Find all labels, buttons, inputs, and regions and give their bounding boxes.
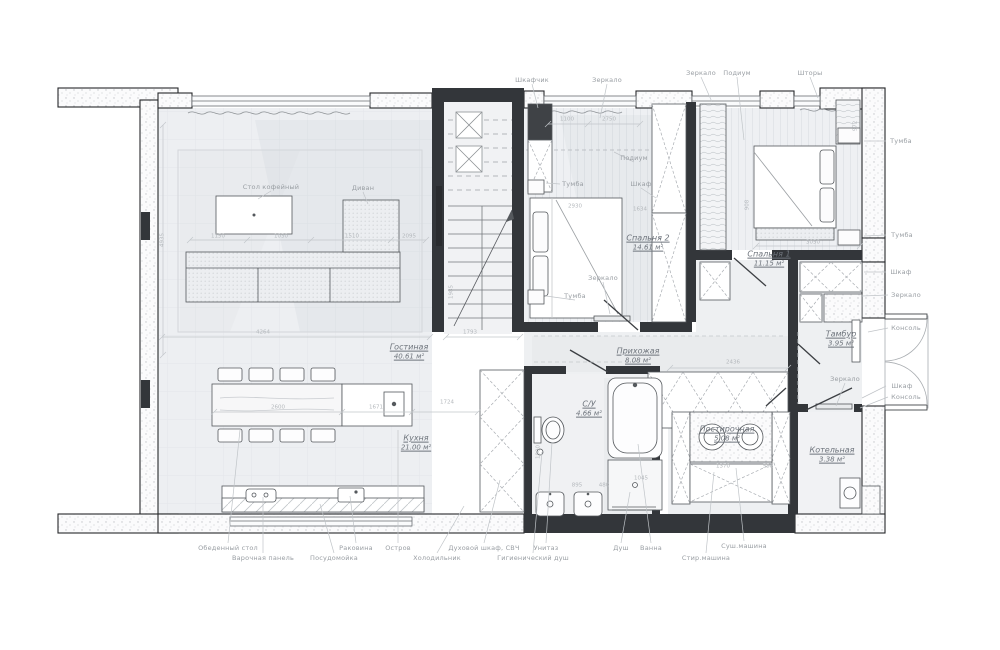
pillow <box>820 188 834 222</box>
dimension-label: 972 <box>853 121 859 132</box>
room-name: Прихожая <box>617 347 660 357</box>
callout-podium: Подиум <box>620 155 648 162</box>
room-label-vestibule: Тамбур 3.95 м² <box>826 330 857 349</box>
dimension-label: 3050 <box>806 240 820 246</box>
callout-dishwasher: Посудомойка <box>310 555 358 562</box>
dimension-label: 2436 <box>726 360 740 366</box>
dimension-label: 2095 <box>402 234 416 240</box>
dimension-label: 908 <box>745 200 751 211</box>
dimension-label: 1900 <box>536 445 542 459</box>
callout-cooktop: Варочная панель <box>232 555 294 562</box>
dimension-label: 1510 <box>345 234 359 240</box>
callout-wardrobe: Шкаф <box>891 383 912 390</box>
room-area: 5.08 м² <box>700 435 755 444</box>
cooktop <box>246 489 276 502</box>
dimension-label: 2600 <box>271 405 285 411</box>
callout-toilet: Унитаз <box>534 545 559 552</box>
tall-cabinets <box>480 370 524 512</box>
room-name: Котельная <box>810 446 855 456</box>
room-area: 40.61 м² <box>390 353 429 362</box>
room-label-boiler: Котельная 3.38 м² <box>810 446 855 465</box>
entry-door-leaf <box>885 405 927 410</box>
callout-coffee-table: Стол кофейный <box>243 184 299 191</box>
dimension-label: 1634 <box>633 207 647 213</box>
callout-wardrobe: Шкаф <box>890 269 911 276</box>
room-label-kitchen: Кухня 21.00 м² <box>401 434 431 453</box>
dimension-label: 2930 <box>568 204 582 210</box>
callout-console: Консоль <box>891 325 921 332</box>
nightstand <box>528 180 544 194</box>
callout-mirror: Зеркало <box>830 376 860 383</box>
dimension-label: 558 <box>763 464 774 470</box>
tv <box>436 186 442 246</box>
dimension-label: 1793 <box>463 330 477 336</box>
room-label-bedroom-1: Спальня 1 11.15 м² <box>747 250 790 269</box>
wardrobe <box>652 104 686 322</box>
boiler <box>840 478 860 508</box>
callout-hygienic-shower: Гигиенический душ <box>497 555 569 562</box>
closet-tv-unit <box>528 104 552 140</box>
washbasin <box>574 492 602 516</box>
callout-curtains: Шторы <box>798 70 823 77</box>
dimension-label: 1030 <box>274 234 288 240</box>
room-name: С/У <box>576 400 602 410</box>
dimension-label: 1150 <box>211 234 225 240</box>
room-area: 4.66 м² <box>576 410 602 419</box>
dimension-label: 1045 <box>634 476 648 482</box>
room-label-bedroom-2: Спальня 2 14.61 м² <box>626 234 669 253</box>
callout-cabinet: Шкафчик <box>515 77 549 84</box>
room-area: 14.61 м² <box>626 244 669 253</box>
bed-bench <box>756 228 834 240</box>
room-label-hallway: Прихожая 8.08 м² <box>617 347 660 366</box>
toilet-tank <box>534 417 541 443</box>
room-name: Спальня 2 <box>626 234 669 244</box>
room-name: Кухня <box>401 434 431 444</box>
room-area: 21.00 м² <box>401 444 431 453</box>
callout-mirror: Зеркало <box>686 70 716 77</box>
callout-mirror: Зеркало <box>588 275 618 282</box>
room-label-bathroom: С/У 4.66 м² <box>576 400 602 419</box>
callout-podium: Подиум <box>723 70 751 77</box>
dimension-label: 1724 <box>440 400 454 406</box>
callout-bathtub: Ванна <box>640 545 662 552</box>
entry-closet <box>800 262 862 292</box>
room-label-living: Гостиная 40.61 м² <box>390 343 429 362</box>
callout-sink: Раковина <box>339 545 373 552</box>
dimension-label: 2750 <box>602 117 616 123</box>
callout-nightstand: Тумба <box>564 293 586 300</box>
sofa <box>186 252 400 302</box>
floor-plan-drawing <box>0 0 1000 650</box>
room-name: Гостиная <box>390 343 429 353</box>
dimension-label: 4264 <box>256 330 270 336</box>
callout-dining-table: Обеденный стол <box>198 545 258 552</box>
callout-wardrobe: Шкаф <box>630 181 651 188</box>
dimension-label: 1985 <box>449 285 455 299</box>
island-faucet <box>392 402 396 406</box>
dimension-label: 1671 <box>369 405 383 411</box>
room-area: 3.38 м² <box>810 456 855 465</box>
callout-mirror: Зеркало <box>891 292 921 299</box>
callout-oven-microwave: Духовой шкаф, СВЧ <box>448 545 519 552</box>
nightstand <box>838 230 860 245</box>
shower <box>608 460 662 510</box>
room-area: 8.08 м² <box>617 357 660 366</box>
room-area: 11.15 м² <box>747 260 790 269</box>
entry-bench <box>824 294 862 322</box>
room-label-laundry: Постирочная 5.08 м² <box>700 425 755 444</box>
dimension-label: 4935 <box>160 233 166 247</box>
callout-fridge: Холодильник <box>413 555 461 562</box>
dimension-label: 895 <box>572 483 583 489</box>
room-name: Тамбур <box>826 330 857 340</box>
dimension-label: 1370 <box>716 464 730 470</box>
sofa-chaise <box>343 200 399 252</box>
counter-sink <box>338 488 364 502</box>
washbasin <box>536 492 564 516</box>
floor-plan-page: Гостиная 40.61 м² Кухня 21.00 м² С/У 4.6… <box>0 0 1000 650</box>
callout-nightstand: Тумба <box>562 181 584 188</box>
callout-nightstand: Тумба <box>891 232 913 239</box>
entry-door-leaf <box>885 314 927 319</box>
room-name: Постирочная <box>700 425 755 435</box>
dimension-label: 480 <box>599 483 610 489</box>
callout-shower: Душ <box>613 545 628 552</box>
entry-mirror <box>816 404 852 409</box>
room-name: Спальня 1 <box>747 250 790 260</box>
pillow <box>820 150 834 184</box>
wardrobe <box>700 104 726 250</box>
callout-washing-machine: Стир.машина <box>682 555 730 562</box>
callout-mirror: Зеркало <box>592 77 622 84</box>
callout-dryer-machine: Суш.машина <box>721 543 767 550</box>
pillow <box>533 212 548 252</box>
nightstand <box>528 290 544 304</box>
dimension-label: 1100 <box>560 117 574 123</box>
callout-nightstand: Тумба <box>890 138 912 145</box>
room-area: 3.95 м² <box>826 340 857 349</box>
callout-console: Консоль <box>891 394 921 401</box>
callout-island: Остров <box>385 545 411 552</box>
callout-sofa: Диван <box>352 185 374 192</box>
bathtub <box>608 378 662 458</box>
